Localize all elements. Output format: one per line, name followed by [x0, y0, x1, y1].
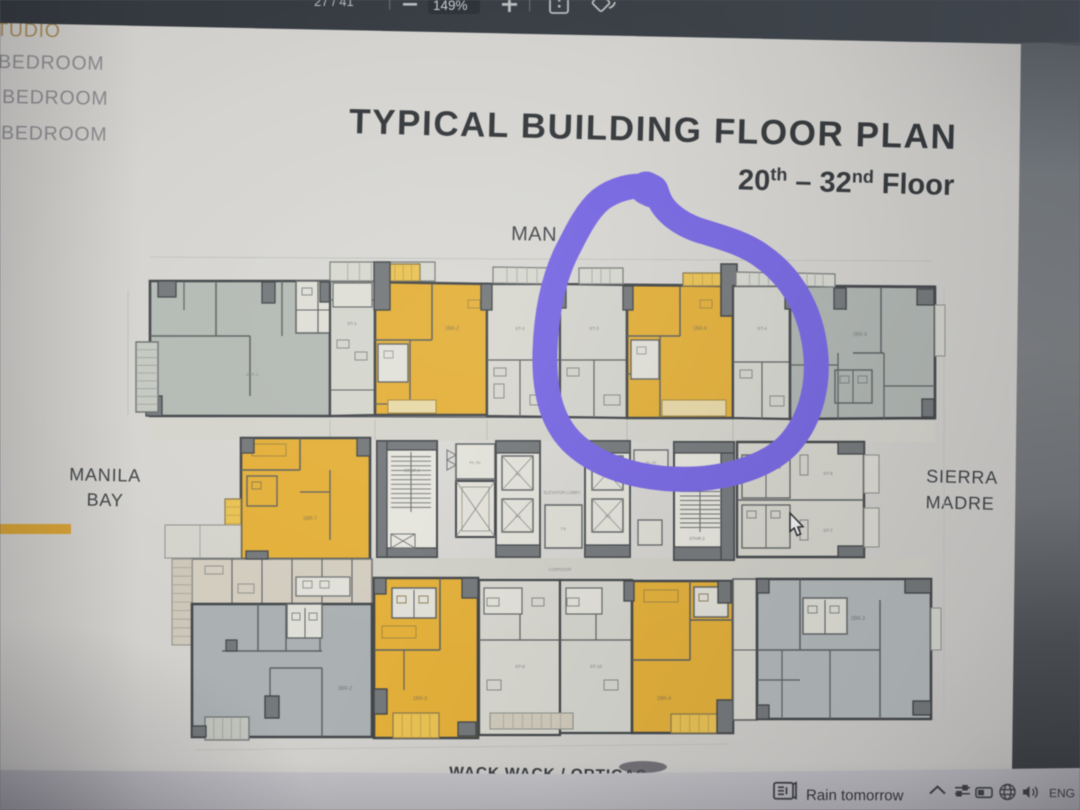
svg-text:Rain tomorrow: Rain tomorrow	[806, 787, 904, 805]
svg-text:ENG: ENG	[1049, 786, 1075, 800]
